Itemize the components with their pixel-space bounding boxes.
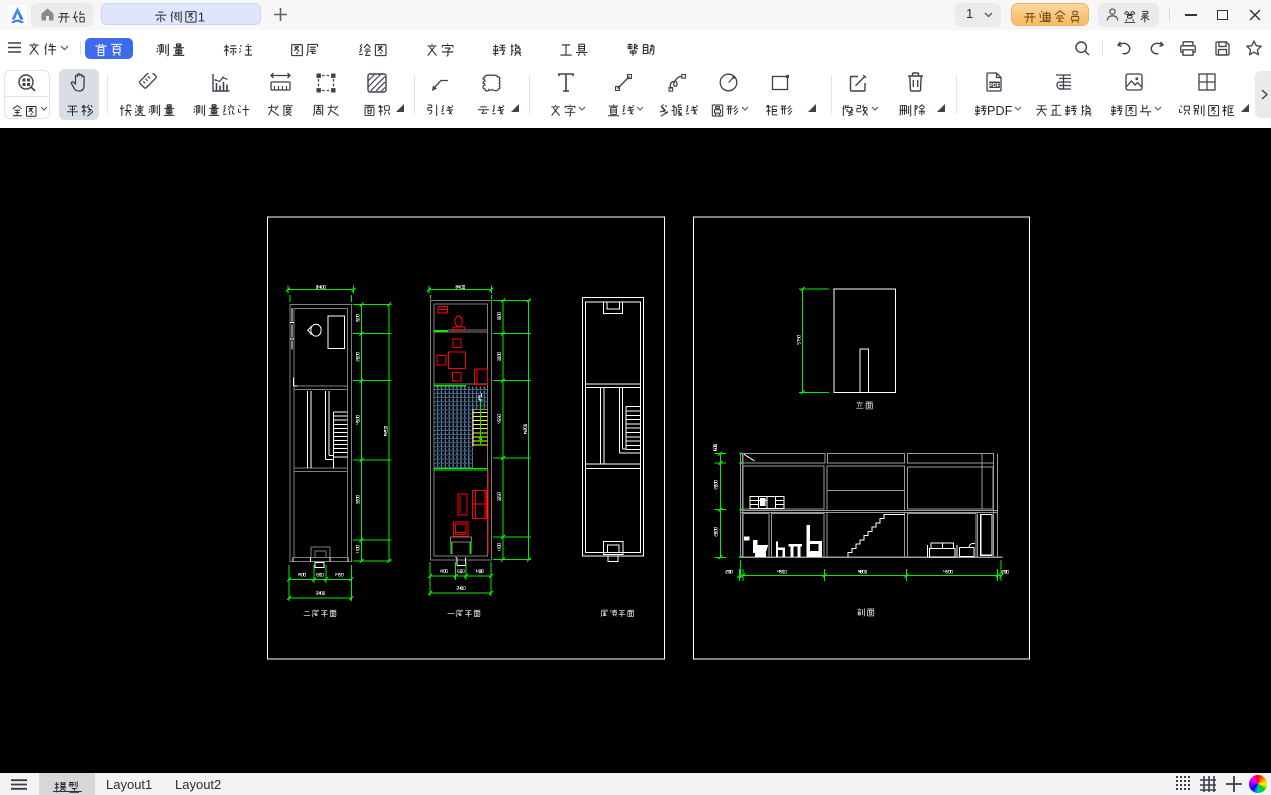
svg-text:PDF: PDF — [989, 83, 1000, 89]
